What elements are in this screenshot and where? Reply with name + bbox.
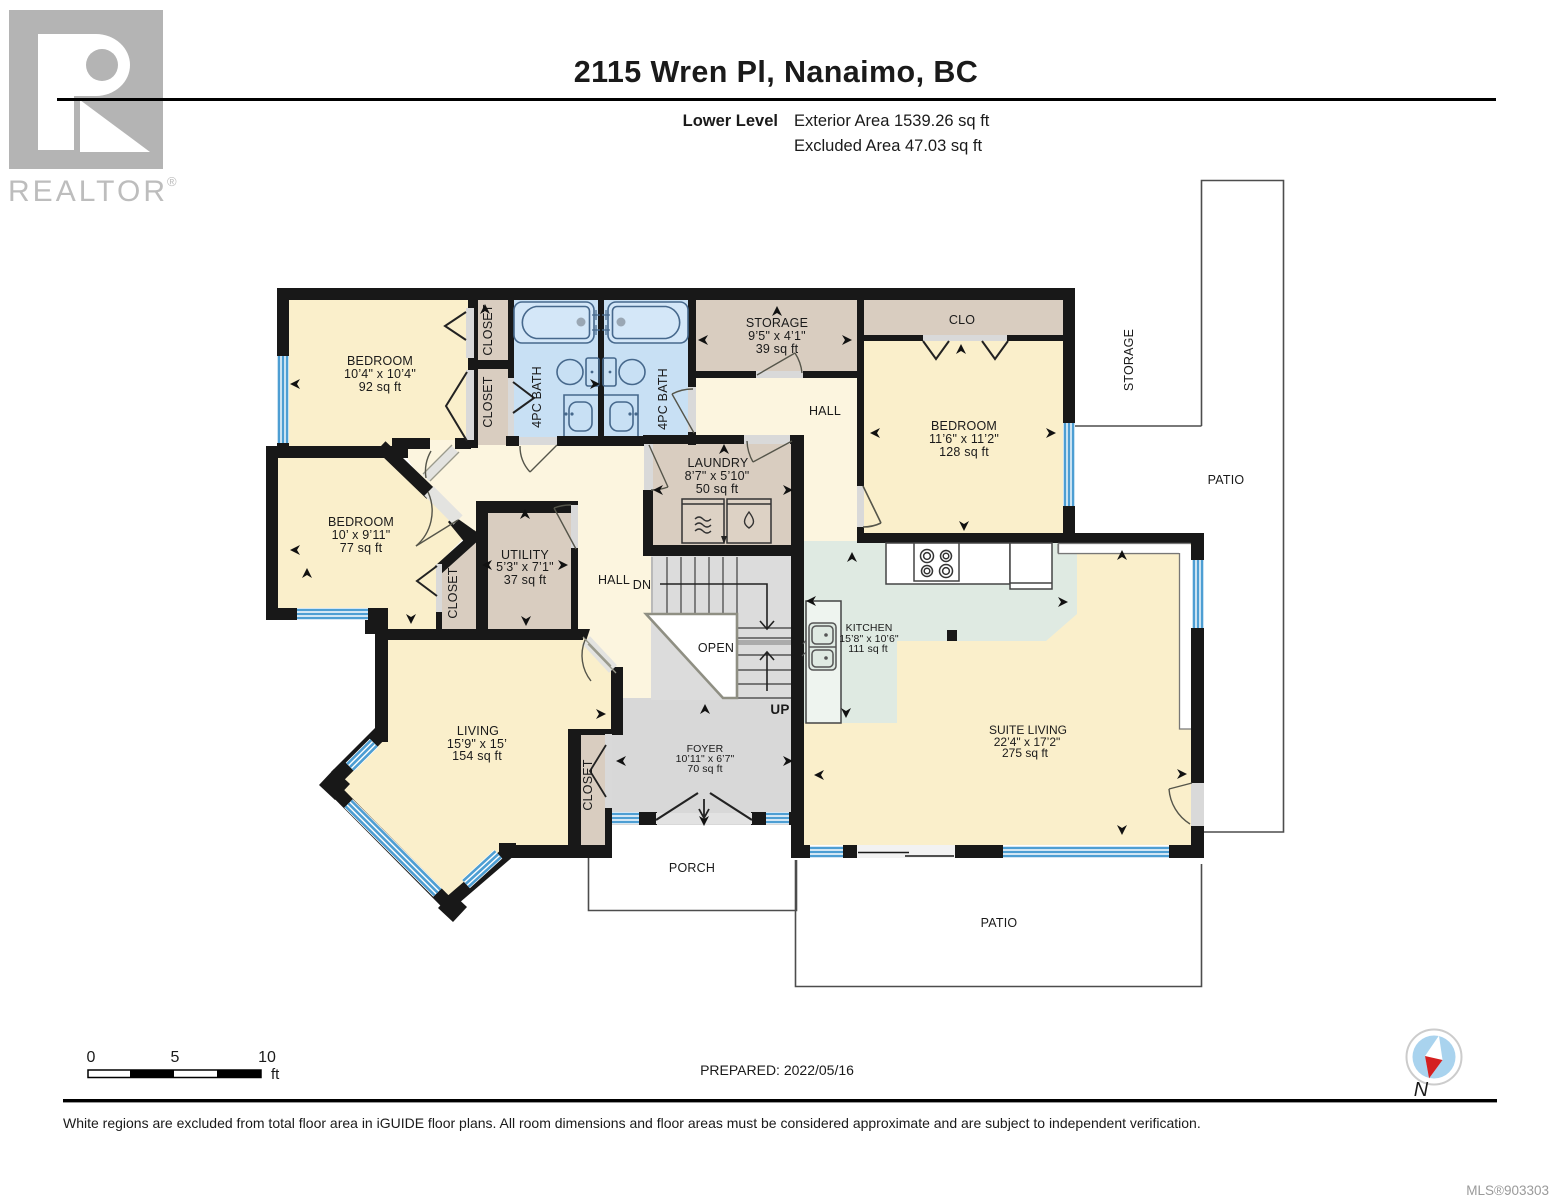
svg-text:9’5" x 4’1": 9’5" x 4’1" bbox=[748, 329, 806, 343]
svg-text:BEDROOM: BEDROOM bbox=[347, 354, 413, 368]
svg-text:PORCH: PORCH bbox=[669, 861, 715, 875]
svg-text:MLS®903303: MLS®903303 bbox=[1466, 1183, 1549, 1198]
svg-text:70 sq ft: 70 sq ft bbox=[687, 763, 722, 775]
svg-text:4PC BATH: 4PC BATH bbox=[656, 368, 670, 430]
svg-text:92 sq ft: 92 sq ft bbox=[359, 380, 402, 394]
svg-text:2115 Wren Pl, Nanaimo, BC: 2115 Wren Pl, Nanaimo, BC bbox=[574, 55, 978, 89]
svg-text:CLOSET: CLOSET bbox=[446, 567, 460, 618]
svg-text:CLOSET: CLOSET bbox=[481, 376, 495, 427]
svg-text:CLOSET: CLOSET bbox=[581, 759, 595, 810]
svg-text:PATIO: PATIO bbox=[981, 916, 1018, 930]
svg-text:11’6" x 11’2": 11’6" x 11’2" bbox=[929, 432, 999, 446]
svg-text:OPEN: OPEN bbox=[698, 641, 734, 655]
svg-text:®: ® bbox=[167, 174, 177, 189]
svg-text:BEDROOM: BEDROOM bbox=[931, 419, 997, 433]
svg-text:8’7" x 5’10": 8’7" x 5’10" bbox=[685, 469, 750, 483]
svg-text:50 sq ft: 50 sq ft bbox=[696, 482, 739, 496]
svg-text:111 sq ft: 111 sq ft bbox=[848, 643, 888, 655]
svg-text:STORAGE: STORAGE bbox=[1122, 329, 1136, 391]
svg-text:275 sq ft: 275 sq ft bbox=[1002, 746, 1049, 760]
svg-text:LIVING: LIVING bbox=[457, 724, 499, 738]
svg-text:77 sq ft: 77 sq ft bbox=[340, 541, 383, 555]
svg-text:HALL: HALL bbox=[809, 404, 841, 418]
svg-text:PATIO: PATIO bbox=[1208, 473, 1245, 487]
svg-text:LAUNDRY: LAUNDRY bbox=[688, 456, 749, 470]
svg-text:Lower Level: Lower Level bbox=[683, 112, 778, 130]
svg-text:Exterior Area 1539.26 sq ft: Exterior Area 1539.26 sq ft bbox=[794, 112, 990, 130]
svg-text:37 sq ft: 37 sq ft bbox=[504, 573, 547, 587]
svg-text:0: 0 bbox=[87, 1049, 96, 1066]
svg-text:UP: UP bbox=[770, 702, 789, 717]
svg-text:5: 5 bbox=[171, 1049, 180, 1066]
svg-text:N: N bbox=[1414, 1079, 1429, 1101]
svg-text:STORAGE: STORAGE bbox=[746, 316, 808, 330]
svg-text:128 sq ft: 128 sq ft bbox=[939, 445, 989, 459]
svg-text:CLO: CLO bbox=[949, 313, 975, 327]
svg-text:HALL: HALL bbox=[598, 573, 630, 587]
svg-text:10: 10 bbox=[258, 1049, 276, 1066]
svg-text:DN: DN bbox=[633, 578, 651, 592]
svg-text:BEDROOM: BEDROOM bbox=[328, 515, 394, 529]
svg-text:5’3" x 7’1": 5’3" x 7’1" bbox=[496, 560, 554, 574]
svg-text:154 sq ft: 154 sq ft bbox=[452, 749, 502, 763]
svg-text:Excluded Area 47.03 sq ft: Excluded Area 47.03 sq ft bbox=[794, 137, 982, 155]
svg-text:PREPARED: 2022/05/16: PREPARED: 2022/05/16 bbox=[700, 1062, 854, 1078]
svg-text:ft: ft bbox=[271, 1066, 280, 1083]
svg-text:White regions are excluded fro: White regions are excluded from total fl… bbox=[63, 1115, 1201, 1131]
svg-text:4PC BATH: 4PC BATH bbox=[530, 366, 544, 428]
svg-text:39 sq ft: 39 sq ft bbox=[756, 342, 799, 356]
svg-text:10’ x 9’11": 10’ x 9’11" bbox=[332, 528, 391, 542]
svg-text:10’4" x 10’4": 10’4" x 10’4" bbox=[344, 367, 416, 381]
